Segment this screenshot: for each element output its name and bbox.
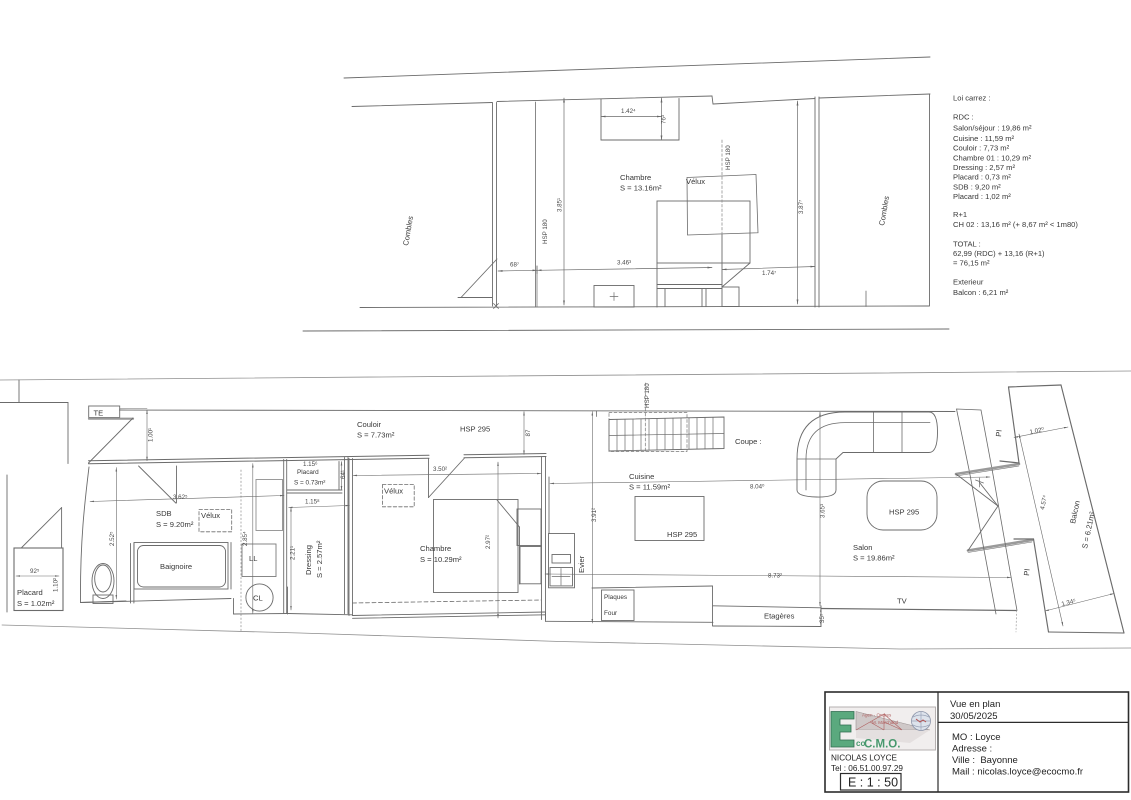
svg-text:Plaques: Plaques xyxy=(604,594,627,601)
svg-text:92⁵: 92⁵ xyxy=(30,568,40,575)
svg-text:S = 11.59m²: S = 11.59m² xyxy=(629,483,670,492)
svg-text:68⁷: 68⁷ xyxy=(510,262,519,269)
svg-text:3.46³: 3.46³ xyxy=(617,260,631,267)
svg-text:SDB : 9,20 m²: SDB : 9,20 m² xyxy=(953,183,1001,192)
svg-text:2.85⁴: 2.85⁴ xyxy=(242,531,249,546)
svg-text:TV: TV xyxy=(897,597,908,606)
svg-text:Couloir : 7,73 m²: Couloir : 7,73 m² xyxy=(953,144,1010,153)
svg-text:HSP 180: HSP 180 xyxy=(644,383,651,408)
svg-text:HSP 295: HSP 295 xyxy=(667,530,697,539)
svg-text:Couloir: Couloir xyxy=(357,420,382,429)
svg-text:Ville : Bayonne: Ville : Bayonne xyxy=(952,755,1018,766)
svg-text:HSP 295: HSP 295 xyxy=(460,425,490,434)
svg-text:SDB: SDB xyxy=(156,509,172,518)
svg-text:Cuisine : 11,59 m²: Cuisine : 11,59 m² xyxy=(953,134,1015,143)
svg-text:Vélux: Vélux xyxy=(201,511,220,520)
svg-text:3.85¹: 3.85¹ xyxy=(557,198,564,212)
svg-text:Chambre: Chambre xyxy=(420,544,451,553)
svg-text:Adresse :: Adresse : xyxy=(952,744,992,755)
svg-text:S = 10.29m²: S = 10.29m² xyxy=(420,555,462,564)
svg-text:1.15⁶: 1.15⁶ xyxy=(303,461,318,468)
svg-text:R+1: R+1 xyxy=(953,210,967,219)
svg-text:2.52⁵: 2.52⁵ xyxy=(109,531,116,546)
svg-text:S = 7.73m²: S = 7.73m² xyxy=(357,431,395,440)
svg-text:Placard: Placard xyxy=(297,469,319,476)
svg-text:1.15⁸: 1.15⁸ xyxy=(305,499,320,506)
svg-text:PI: PI xyxy=(994,429,1004,437)
svg-text:S = 19.86m²: S = 19.86m² xyxy=(853,554,895,563)
svg-text:S = 2.57m²: S = 2.57m² xyxy=(315,540,324,578)
svg-text:3.87⁷: 3.87⁷ xyxy=(798,200,805,214)
svg-text:RDC :: RDC : xyxy=(953,113,974,122)
svg-text:3.91²: 3.91² xyxy=(591,508,598,522)
svg-text:Vélux: Vélux xyxy=(384,487,403,496)
svg-text:S = 1.02m²: S = 1.02m² xyxy=(17,599,55,608)
svg-text:Balcon : 6,21 m²: Balcon : 6,21 m² xyxy=(953,288,1009,297)
svg-text:Coupe :: Coupe : xyxy=(735,437,762,446)
svg-text:3.65³: 3.65³ xyxy=(820,504,827,518)
svg-text:Salon: Salon xyxy=(853,543,872,552)
svg-text:3.50²: 3.50² xyxy=(433,466,447,473)
svg-text:30/05/2025: 30/05/2025 xyxy=(950,711,998,722)
svg-text:HSP 180: HSP 180 xyxy=(725,145,732,170)
svg-text:E : 1 : 50: E : 1 : 50 xyxy=(848,776,898,790)
svg-text:76³: 76³ xyxy=(661,115,668,124)
svg-text:Etagères: Etagères xyxy=(764,612,795,621)
svg-text:3.62⁵: 3.62⁵ xyxy=(173,494,188,501)
svg-text:LL: LL xyxy=(249,554,257,563)
svg-text:Dressing : 2,57 m²: Dressing : 2,57 m² xyxy=(953,163,1016,172)
svg-text:PI: PI xyxy=(1022,568,1032,576)
svg-text:2.97²: 2.97² xyxy=(485,535,492,549)
svg-text:Tel : 06.51.00.97.29: Tel : 06.51.00.97.29 xyxy=(831,764,903,773)
svg-text:Chambre: Chambre xyxy=(620,173,651,182)
svg-text:87: 87 xyxy=(525,429,532,436)
svg-text:Vélux: Vélux xyxy=(686,177,705,186)
svg-text:1.00¹: 1.00¹ xyxy=(148,428,155,442)
svg-text:Mail : nicolas.loyce@ecocmo.fr: Mail : nicolas.loyce@ecocmo.fr xyxy=(952,767,1083,778)
svg-text:M. Marchand: M. Marchand xyxy=(872,720,899,725)
svg-text:NICOLAS LOYCE: NICOLAS LOYCE xyxy=(831,754,898,763)
svg-text:8.73²: 8.73² xyxy=(768,573,782,580)
svg-text:HSP 180: HSP 180 xyxy=(542,219,549,244)
svg-text:TOTAL :: TOTAL : xyxy=(953,240,981,249)
svg-text:Four: Four xyxy=(604,610,618,617)
svg-text:Exterieur: Exterieur xyxy=(953,278,984,287)
svg-text:Salon/séjour : 19,86 m²: Salon/séjour : 19,86 m² xyxy=(953,124,1032,133)
svg-text:35⁵: 35⁵ xyxy=(819,613,826,623)
svg-text:Cuisine: Cuisine xyxy=(629,472,654,481)
svg-text:Chambre 01 : 10,29 m²: Chambre 01 : 10,29 m² xyxy=(953,154,1032,163)
svg-text:Placard : 0,73 m²: Placard : 0,73 m² xyxy=(953,173,1011,182)
svg-text:8.04⁰: 8.04⁰ xyxy=(750,484,765,491)
svg-text:MO : Loyce: MO : Loyce xyxy=(952,732,1001,743)
svg-text:HSP 295: HSP 295 xyxy=(889,508,919,517)
svg-text:1.10²: 1.10² xyxy=(53,578,60,592)
svg-text:S = 0.73m²: S = 0.73m² xyxy=(294,480,325,487)
svg-text:Placard: Placard xyxy=(17,588,43,597)
svg-text:1.42⁴: 1.42⁴ xyxy=(621,108,636,115)
svg-text:Vue en plan: Vue en plan xyxy=(950,699,1000,710)
svg-text:Evier: Evier xyxy=(577,555,586,573)
svg-text:CH 02 : 13,16 m² (+ 8,67 m² <: CH 02 : 13,16 m² (+ 8,67 m² < 1m80) xyxy=(953,220,1078,229)
svg-text:TE: TE xyxy=(94,409,104,418)
svg-text:S = 13.16m²: S = 13.16m² xyxy=(620,184,662,193)
svg-text:Baignoire: Baignoire xyxy=(160,562,192,571)
svg-text:Dressing: Dressing xyxy=(304,545,313,575)
svg-text:Placard : 1,02 m²: Placard : 1,02 m² xyxy=(953,192,1011,201)
svg-text:C.M.O.: C.M.O. xyxy=(864,739,900,751)
svg-text:CL: CL xyxy=(253,594,263,603)
svg-text:2.21¹: 2.21¹ xyxy=(290,546,297,560)
svg-text:62,99 (RDC) + 13,16 (R+1): 62,99 (RDC) + 13,16 (R+1) xyxy=(953,249,1045,258)
svg-text:1.74⁷: 1.74⁷ xyxy=(762,270,776,277)
svg-text:Loi carrez :: Loi carrez : xyxy=(953,94,991,103)
svg-text:Agen - Ondres: Agen - Ondres xyxy=(862,713,892,718)
svg-text:= 76,15 m²: = 76,15 m² xyxy=(953,259,990,268)
svg-text:64¹: 64¹ xyxy=(340,470,347,479)
svg-text:S = 9.20m²: S = 9.20m² xyxy=(156,520,194,529)
